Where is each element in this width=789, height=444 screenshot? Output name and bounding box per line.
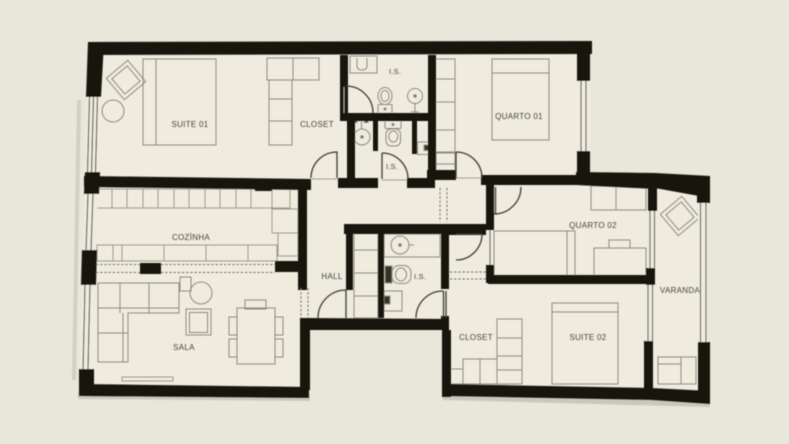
svg-text:SUITE 01: SUITE 01 (171, 120, 208, 129)
svg-text:SALA: SALA (173, 343, 195, 352)
svg-text:SUITE 02: SUITE 02 (569, 333, 606, 342)
svg-text:CLOSET: CLOSET (459, 333, 493, 342)
svg-text:QUARTO 01: QUARTO 01 (495, 112, 543, 121)
svg-text:HALL: HALL (321, 272, 342, 281)
svg-text:COZÌNHA: COZÌNHA (172, 233, 210, 242)
svg-text:I.S.: I.S. (414, 272, 426, 281)
svg-text:QUARTO 02: QUARTO 02 (569, 221, 617, 230)
svg-text:CLOSET: CLOSET (300, 120, 334, 129)
svg-text:I.S.: I.S. (386, 162, 398, 171)
svg-text:I.S.: I.S. (389, 67, 401, 76)
svg-text:VARANDA: VARANDA (660, 286, 701, 295)
